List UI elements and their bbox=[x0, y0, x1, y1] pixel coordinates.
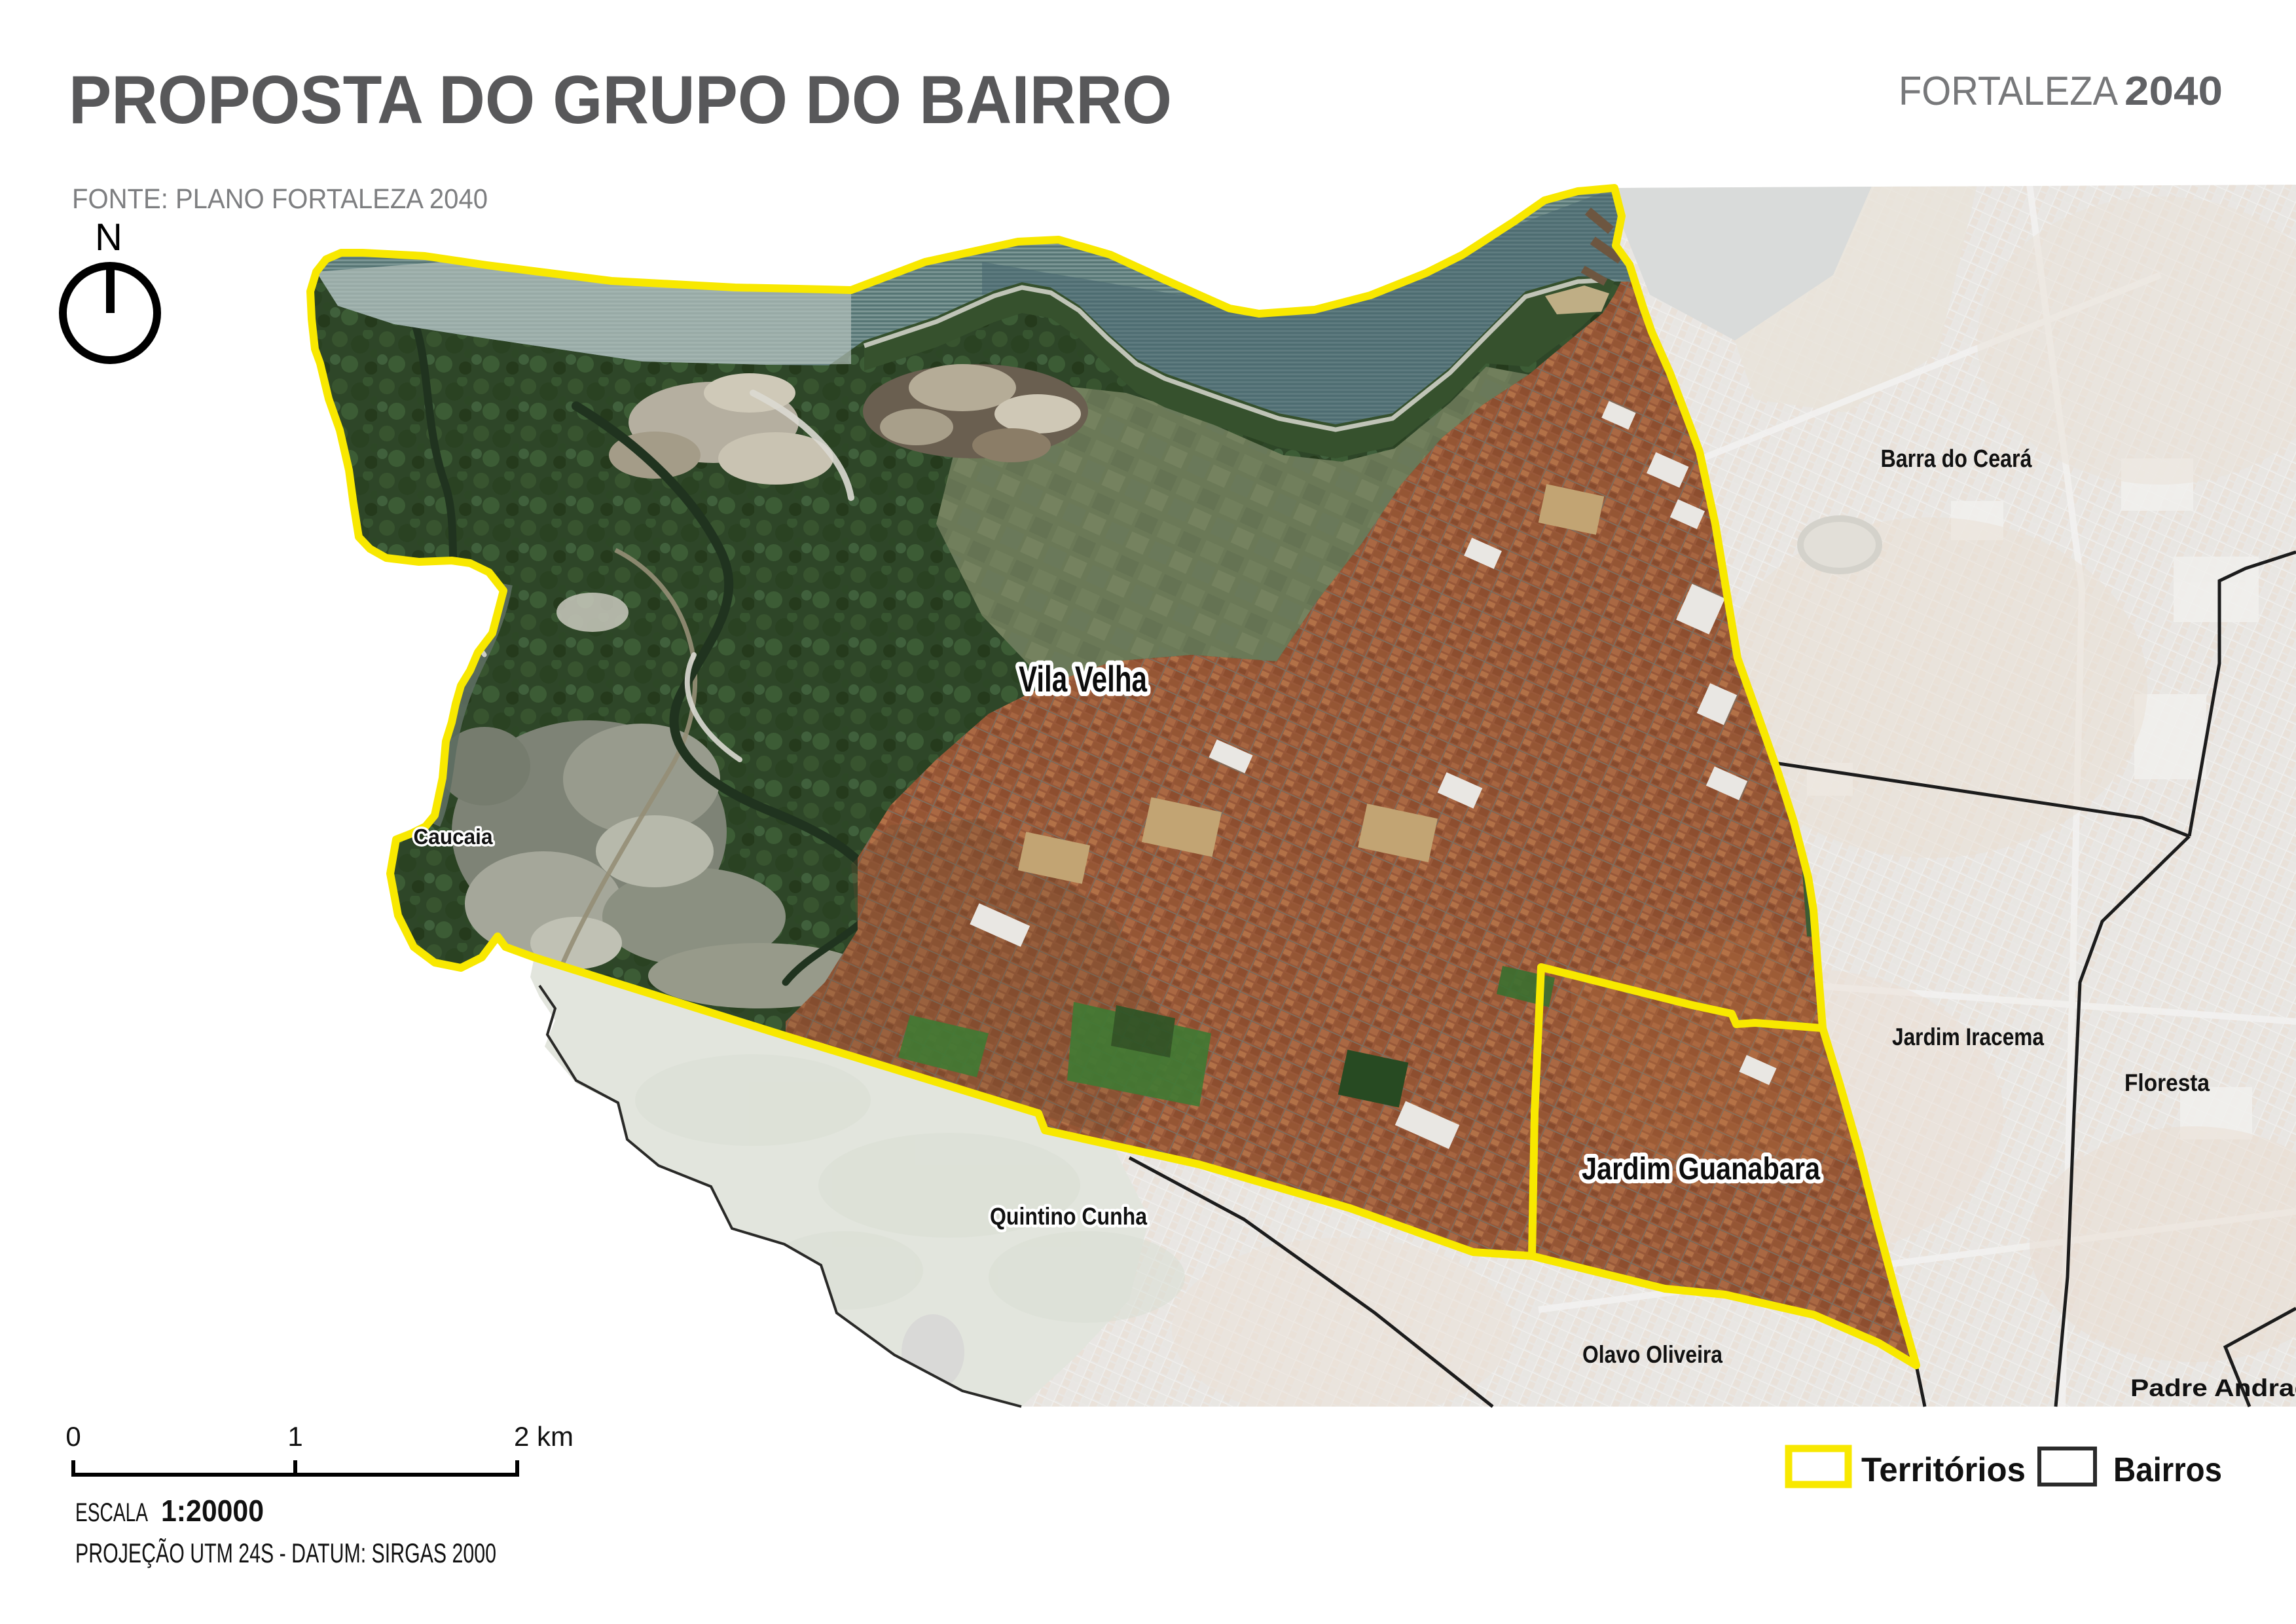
svg-text:Padre Andrade: Padre Andrade bbox=[2130, 1375, 2296, 1401]
svg-text:Olavo Oliveira: Olavo Oliveira bbox=[1582, 1341, 1722, 1368]
svg-text:Caucaia: Caucaia bbox=[414, 824, 494, 849]
svg-text:2 km: 2 km bbox=[514, 1421, 574, 1452]
svg-text:FORTALEZA: FORTALEZA bbox=[1899, 69, 2119, 114]
svg-text:PROJEÇÃO UTM 24S - DATUM: SIRG: PROJEÇÃO UTM 24S - DATUM: SIRGAS 2000 bbox=[75, 1538, 496, 1568]
svg-text:Territórios: Territórios bbox=[1861, 1451, 2026, 1489]
svg-text:1: 1 bbox=[287, 1421, 302, 1452]
svg-text:Floresta: Floresta bbox=[2124, 1069, 2210, 1096]
svg-text:2040: 2040 bbox=[2124, 69, 2223, 114]
svg-text:ESCALA: ESCALA bbox=[75, 1498, 148, 1527]
svg-text:FONTE: PLANO FORTALEZA 2040: FONTE: PLANO FORTALEZA 2040 bbox=[72, 183, 488, 215]
svg-text:0: 0 bbox=[65, 1421, 81, 1452]
svg-text:PROPOSTA DO GRUPO DO BAIRRO: PROPOSTA DO GRUPO DO BAIRRO bbox=[69, 62, 1172, 138]
svg-text:Barra do Ceará: Barra do Ceará bbox=[1881, 445, 2033, 473]
svg-text:1:20000: 1:20000 bbox=[161, 1494, 264, 1528]
svg-text:Jardim Guanabara: Jardim Guanabara bbox=[1582, 1152, 1820, 1187]
svg-text:N: N bbox=[95, 216, 122, 259]
svg-text:Bairros: Bairros bbox=[2113, 1451, 2222, 1489]
svg-text:Quintino Cunha: Quintino Cunha bbox=[990, 1203, 1147, 1230]
svg-text:Jardim Iracema: Jardim Iracema bbox=[1892, 1024, 2044, 1050]
svg-text:Vila Velha: Vila Velha bbox=[1019, 658, 1148, 699]
